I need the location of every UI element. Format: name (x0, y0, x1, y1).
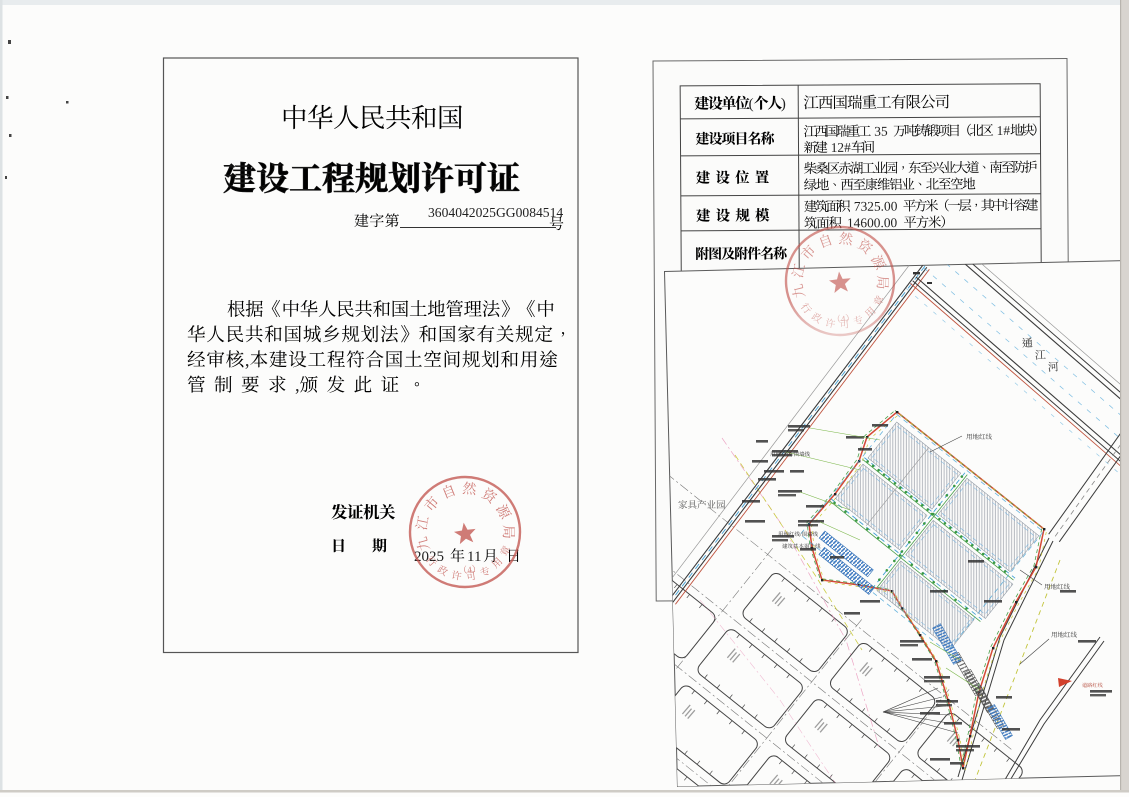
svg-text:12#: 12# (831, 140, 851, 155)
svg-text:,: , (245, 350, 250, 371)
svg-text:7325.00: 7325.00 (854, 199, 898, 214)
svg-text:(: ( (749, 96, 754, 112)
svg-text:3604042025GG0084514: 3604042025GG0084514 (428, 205, 563, 220)
svg-text:35: 35 (874, 124, 888, 139)
svg-text:,: , (295, 375, 300, 396)
svg-text:11: 11 (467, 549, 481, 565)
svg-text:): ) (781, 96, 786, 112)
svg-text:1#: 1# (997, 123, 1011, 138)
